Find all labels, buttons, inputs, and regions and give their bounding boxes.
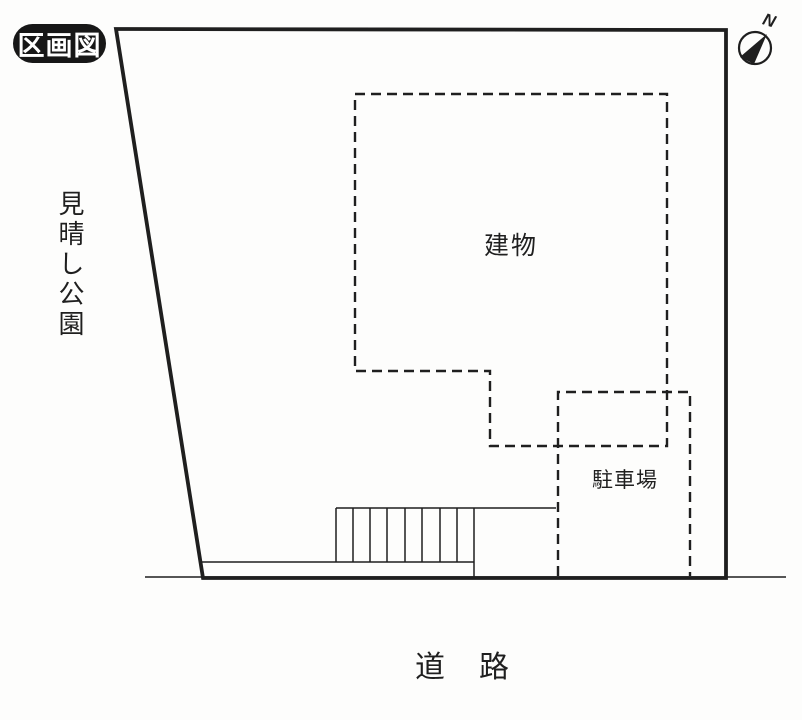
park-label: 見晴し公園: [57, 190, 83, 340]
entrance-steps: [201, 508, 556, 577]
title-badge: 区画図: [13, 24, 106, 63]
site-plan-drawing: [0, 0, 802, 720]
plot-plan-figure: 区画図 見晴し公園 建物 駐車場 道 路 N: [0, 0, 802, 720]
road-label: 道 路: [415, 653, 511, 683]
parking-label: 駐車場: [592, 470, 658, 491]
building-label: 建物: [484, 234, 538, 259]
compass-icon: [739, 32, 771, 64]
plot-boundary: [116, 29, 726, 578]
